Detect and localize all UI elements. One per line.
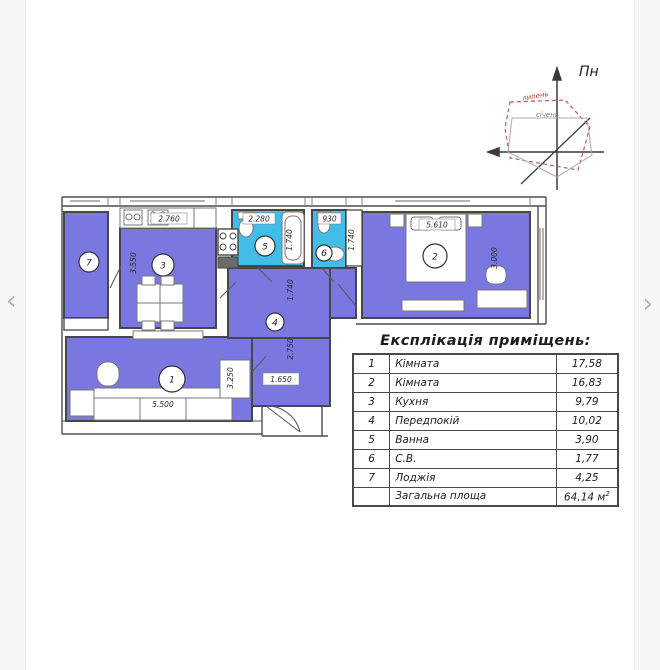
row-area: 4,25 [556,468,618,487]
row-name: Кухня [390,392,557,411]
row-num: 7 [353,468,390,487]
row-num: 4 [353,411,390,430]
row-name: Передпокій [390,411,557,430]
north-label: Пн [579,64,599,80]
january-label: січень [536,111,559,119]
listing-photo: ‹ › [0,0,660,670]
explication-table: Експлікація приміщень: 1 Кімната 17,58 2… [352,333,619,507]
row-num: 5 [353,430,390,449]
row-area: 17,58 [556,354,618,373]
table-total-row: Загальна площа 64,14 м2 [353,487,618,506]
table-row: 3 Кухня 9,79 [353,392,618,411]
table-row: 7 Лоджія 4,25 [353,468,618,487]
explication-title: Експлікація приміщень: [352,333,619,349]
row-name: Кімната [390,354,557,373]
total-label: Загальна площа [390,487,557,506]
row-name: Лоджія [390,468,557,487]
row-area: 3,90 [556,430,618,449]
row-area: 16,83 [556,373,618,392]
table-row: 6 С.В. 1,77 [353,449,618,468]
table-row: 2 Кімната 16,83 [353,373,618,392]
table-row: 4 Передпокій 10,02 [353,411,618,430]
row-num: 2 [353,373,390,392]
row-num: 6 [353,449,390,468]
total-area: 64,14 м2 [556,487,618,506]
total-value: 64,14 м [564,491,605,503]
total-num-blank [353,487,390,506]
row-name: С.В. [390,449,557,468]
row-num: 1 [353,354,390,373]
row-area: 9,79 [556,392,618,411]
table-row: 5 Ванна 3,90 [353,430,618,449]
row-name: Ванна [390,430,557,449]
sun-path-january [508,118,592,177]
total-sup: 2 [605,490,609,498]
row-area: 10,02 [556,411,618,430]
table-row: 1 Кімната 17,58 [353,354,618,373]
row-name: Кімната [390,373,557,392]
row-area: 1,77 [556,449,618,468]
row-num: 3 [353,392,390,411]
